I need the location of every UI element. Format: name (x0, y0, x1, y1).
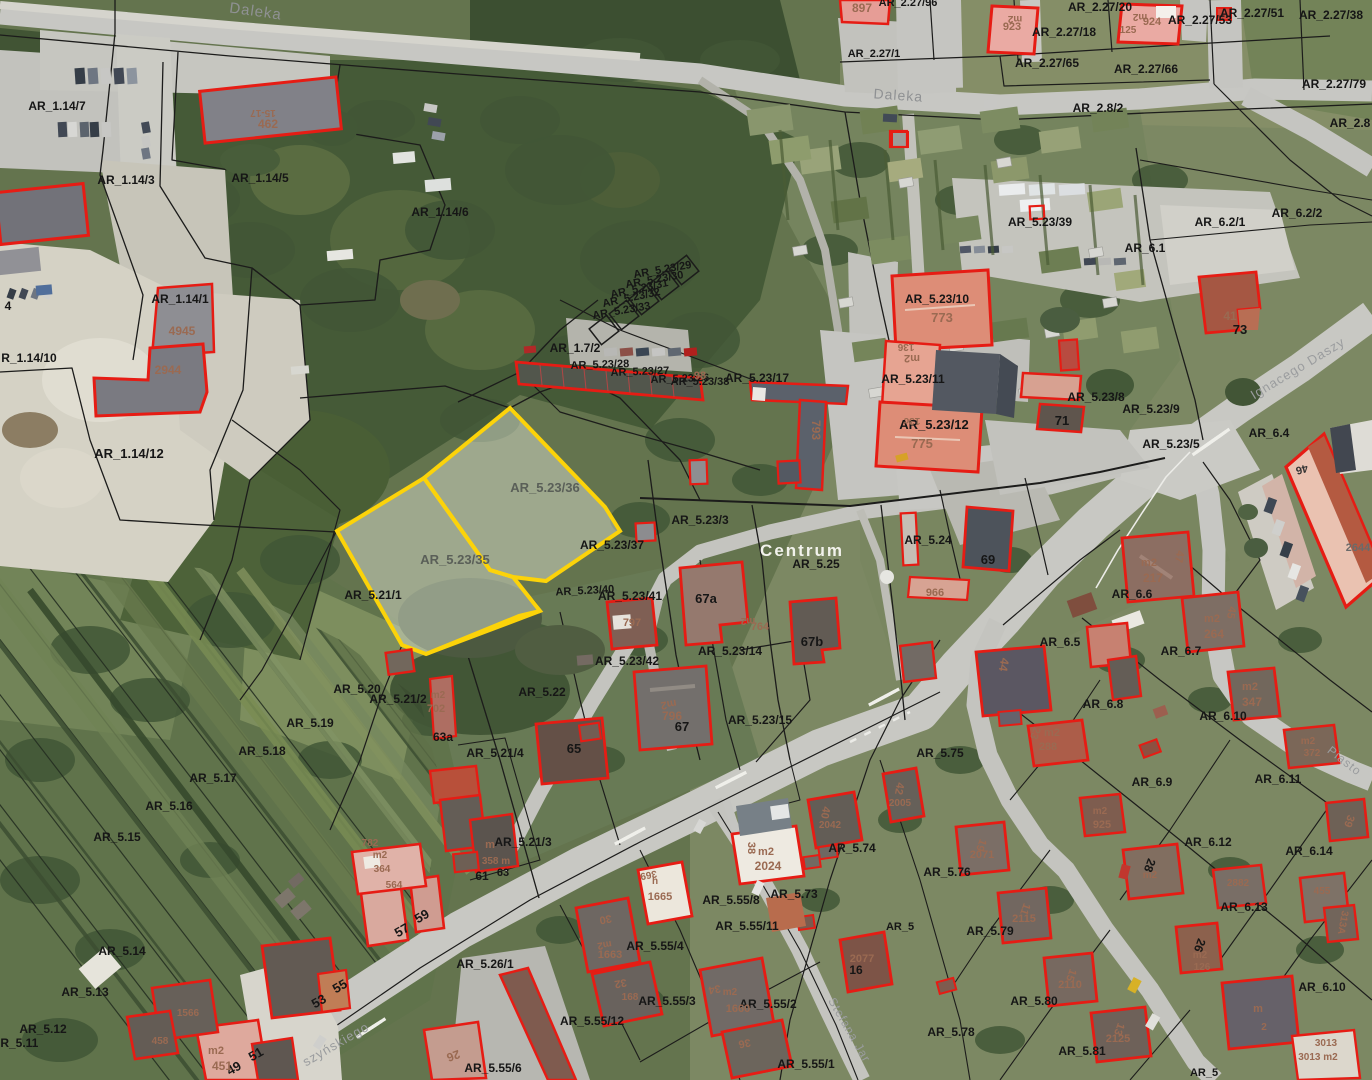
svg-text:358 m: 358 m (482, 856, 510, 867)
svg-text:AR_5.23/8: AR_5.23/8 (1067, 390, 1125, 404)
svg-text:2024: 2024 (755, 859, 782, 873)
svg-text:AR_5.25: AR_5.25 (792, 557, 840, 571)
svg-text:AR_5.23/10: AR_5.23/10 (905, 292, 969, 306)
svg-text:217: 217 (1143, 571, 1163, 585)
svg-text:61: 61 (475, 869, 489, 883)
svg-text:AR_5.16: AR_5.16 (145, 799, 193, 813)
svg-text:AR_5.23/39: AR_5.23/39 (1008, 215, 1072, 229)
svg-text:m2: m2 (373, 850, 388, 861)
svg-text:AR_5.23/35: AR_5.23/35 (420, 552, 489, 567)
svg-text:3013: 3013 (1315, 1038, 1338, 1049)
svg-text:45: 45 (1224, 605, 1238, 619)
svg-text:AR_5.80: AR_5.80 (1010, 994, 1058, 1008)
svg-text:897: 897 (852, 1, 872, 15)
svg-text:1663: 1663 (598, 949, 622, 961)
svg-text:AR_5.23/5: AR_5.23/5 (1142, 437, 1200, 451)
svg-text:AR_5.23/37: AR_5.23/37 (580, 538, 644, 552)
svg-text:63a: 63a (433, 730, 453, 744)
svg-text:AR_1.7/2: AR_1.7/2 (550, 341, 601, 355)
svg-text:773: 773 (931, 310, 953, 325)
svg-text:AR_5.23/15: AR_5.23/15 (728, 713, 792, 727)
svg-text:458: 458 (152, 1036, 169, 1047)
svg-text:AR_5.55/4: AR_5.55/4 (626, 939, 684, 953)
svg-text:AR_5.14: AR_5.14 (98, 944, 146, 958)
svg-text:16: 16 (849, 963, 863, 977)
svg-text:372: 372 (1304, 748, 1321, 759)
svg-text:AR_2.8: AR_2.8 (1330, 116, 1371, 130)
svg-text:65: 65 (567, 741, 581, 756)
svg-text:AR_1.14/3: AR_1.14/3 (97, 173, 155, 187)
svg-text:m2: m2 (1193, 950, 1208, 961)
svg-text:44: 44 (996, 657, 1012, 673)
svg-text:AR_5.13: AR_5.13 (61, 985, 109, 999)
svg-text:98: 98 (694, 370, 706, 382)
svg-text:67a: 67a (695, 591, 717, 606)
svg-text:2071: 2071 (970, 849, 994, 861)
svg-text:m2: m2 (1143, 870, 1158, 881)
svg-text:168: 168 (622, 992, 639, 1003)
svg-text:13c: 13c (903, 415, 920, 426)
svg-text:136: 136 (897, 341, 914, 352)
svg-text:63: 63 (497, 867, 509, 879)
svg-text:4: 4 (5, 299, 12, 313)
svg-text:AR_5.19: AR_5.19 (286, 716, 334, 730)
svg-text:AR_5.21/2: AR_5.21/2 (369, 692, 427, 706)
svg-text:125: 125 (1120, 25, 1137, 36)
svg-text:2115: 2115 (1012, 913, 1036, 925)
svg-text:AR_6.12: AR_6.12 (1184, 835, 1232, 849)
svg-text:AR_2.27/65: AR_2.27/65 (1015, 56, 1079, 70)
svg-text:AR_6.6: AR_6.6 (1112, 587, 1153, 601)
svg-text:AR_5.75: AR_5.75 (916, 746, 964, 760)
svg-text:AR_5.55/8: AR_5.55/8 (702, 893, 760, 907)
svg-text:AR_5.55/12: AR_5.55/12 (560, 1014, 624, 1028)
svg-text:451: 451 (212, 1059, 232, 1073)
svg-text:AR_1.14/7: AR_1.14/7 (28, 99, 86, 113)
svg-text:AR_2.27/18: AR_2.27/18 (1032, 25, 1096, 39)
svg-text:m2: m2 (1301, 736, 1316, 747)
svg-text:455: 455 (1314, 886, 1331, 897)
svg-text:775: 775 (911, 436, 933, 451)
svg-text:AR_1.14/6: AR_1.14/6 (411, 205, 469, 219)
svg-text:m2: m2 (723, 987, 738, 998)
svg-text:AR_5.23/36: AR_5.23/36 (510, 480, 579, 495)
svg-text:264: 264 (1204, 627, 1224, 641)
svg-text:AR_5.55/11: AR_5.55/11 (715, 919, 779, 933)
svg-text:m2: m2 (1007, 13, 1022, 24)
svg-text:AR_5.23/9: AR_5.23/9 (1122, 402, 1180, 416)
svg-text:36: 36 (737, 1036, 751, 1050)
svg-text:67b: 67b (801, 634, 823, 649)
svg-text:m: m (1253, 1003, 1263, 1015)
svg-text:3013 m2: 3013 m2 (1298, 1052, 1338, 1063)
svg-text:564: 564 (386, 880, 403, 891)
svg-text:2005: 2005 (889, 798, 912, 809)
svg-text:AR_6.1: AR_6.1 (1125, 241, 1166, 255)
svg-text:364: 364 (374, 864, 391, 875)
svg-text:AR_6.2/2: AR_6.2/2 (1272, 206, 1323, 220)
svg-text:126: 126 (1194, 962, 1211, 973)
svg-text:AR_1.14/1: AR_1.14/1 (151, 292, 209, 306)
svg-text:AR_2.27/51: AR_2.27/51 (1220, 6, 1284, 20)
svg-text:m2: m2 (1132, 11, 1147, 22)
svg-text:AR_2.27/20: AR_2.27/20 (1068, 0, 1132, 14)
svg-text:1665: 1665 (648, 891, 672, 903)
svg-text:R_1.14/10: R_1.14/10 (1, 351, 57, 365)
svg-text:AR_5.11: AR_5.11 (0, 1036, 39, 1050)
svg-text:AR_5.23/14: AR_5.23/14 (698, 644, 762, 658)
svg-text:AR_5.17: AR_5.17 (189, 771, 237, 785)
svg-text:AR_2.27/66: AR_2.27/66 (1114, 62, 1178, 76)
svg-text:2110: 2110 (1058, 979, 1082, 991)
svg-text:m: m (485, 839, 495, 851)
svg-text:47: 47 (1172, 549, 1186, 563)
svg-text:AR_5: AR_5 (1190, 1067, 1218, 1079)
svg-text:347: 347 (1242, 695, 1262, 709)
svg-text:m2: m2 (904, 352, 920, 364)
svg-text:AR_2.27/38: AR_2.27/38 (1299, 8, 1363, 22)
svg-text:AR_5.18: AR_5.18 (238, 744, 286, 758)
svg-text:AR_6.10: AR_6.10 (1298, 980, 1346, 994)
svg-text:702: 702 (427, 703, 445, 715)
svg-text:AR_5: AR_5 (886, 921, 914, 933)
svg-text:AR_5.15: AR_5.15 (93, 830, 141, 844)
svg-text:782: 782 (362, 838, 379, 849)
svg-text:AR_5.22: AR_5.22 (518, 685, 566, 699)
svg-text:AR_6.14: AR_6.14 (1285, 844, 1333, 858)
svg-text:40: 40 (818, 805, 832, 819)
svg-text:2042: 2042 (819, 820, 842, 831)
svg-text:AR_5.21/1: AR_5.21/1 (344, 588, 402, 602)
svg-text:AR_6.5: AR_6.5 (1040, 635, 1081, 649)
svg-text:AR_5.55/3: AR_5.55/3 (638, 994, 696, 1008)
svg-text:2125: 2125 (1106, 1033, 1130, 1045)
svg-text:41: 41 (1223, 309, 1237, 323)
svg-text:AR_6.2/1: AR_6.2/1 (1195, 215, 1246, 229)
svg-text:2944: 2944 (155, 363, 182, 377)
svg-text:AR_5.55/1: AR_5.55/1 (777, 1057, 835, 1071)
svg-text:AR_5.79: AR_5.79 (966, 924, 1014, 938)
svg-text:m2: m2 (431, 690, 446, 701)
svg-text:AR_5.21/3: AR_5.21/3 (494, 835, 552, 849)
svg-text:AR_6.9: AR_6.9 (1132, 775, 1173, 789)
svg-text:793: 793 (809, 420, 823, 440)
svg-text:AR_5.55/6: AR_5.55/6 (464, 1061, 522, 1075)
svg-text:73: 73 (1233, 322, 1247, 337)
svg-text:AR_5.23/11: AR_5.23/11 (881, 372, 945, 386)
svg-text:462: 462 (258, 117, 278, 131)
svg-text:AR_5.12: AR_5.12 (19, 1022, 67, 1036)
svg-text:m2: m2 (1242, 681, 1258, 693)
svg-text:2882: 2882 (1227, 878, 1250, 889)
svg-text:288: 288 (1039, 741, 1057, 753)
svg-text:AR_5.23/3: AR_5.23/3 (671, 513, 729, 527)
svg-text:797: 797 (623, 617, 641, 629)
svg-text:796: 796 (662, 709, 682, 723)
svg-text:AR_5.76: AR_5.76 (923, 865, 971, 879)
svg-text:925: 925 (1093, 819, 1111, 831)
svg-text:AR_2.27/79: AR_2.27/79 (1302, 77, 1366, 91)
svg-text:m2: m2 (208, 1045, 224, 1057)
svg-text:2: 2 (1261, 1022, 1267, 1033)
svg-text:38: 38 (745, 842, 757, 854)
svg-text:30: 30 (598, 912, 612, 926)
svg-text:AR_5.24: AR_5.24 (904, 533, 952, 547)
svg-text:AR_2.8/2: AR_2.8/2 (1073, 101, 1124, 115)
svg-text:AR_6.7: AR_6.7 (1161, 644, 1202, 658)
svg-text:AR_6.13: AR_6.13 (1220, 900, 1268, 914)
svg-text:AR_5.26/1: AR_5.26/1 (456, 957, 514, 971)
svg-text:m2: m2 (758, 846, 774, 858)
svg-text:1660: 1660 (726, 1003, 750, 1015)
svg-text:AR_1.14/5: AR_1.14/5 (231, 171, 289, 185)
svg-text:m2: m2 (1044, 727, 1060, 739)
svg-text:m2: m2 (1204, 613, 1220, 625)
svg-text:m2: m2 (1141, 557, 1157, 569)
svg-text:4945: 4945 (169, 324, 196, 338)
svg-text:AR_5.21/4: AR_5.21/4 (466, 746, 524, 760)
svg-text:AR_5.23/42: AR_5.23/42 (595, 654, 659, 668)
svg-text:m2: m2 (1093, 806, 1108, 817)
svg-text:2644: 2644 (1346, 542, 1371, 554)
svg-text:71: 71 (1055, 413, 1069, 428)
svg-text:AR_6.10: AR_6.10 (1199, 709, 1247, 723)
svg-text:AR_5.73: AR_5.73 (770, 887, 818, 901)
svg-text:AR_5.78: AR_5.78 (927, 1025, 975, 1039)
svg-text:AR_1.14/12: AR_1.14/12 (94, 446, 163, 461)
svg-text:69: 69 (981, 552, 995, 567)
svg-text:32: 32 (613, 976, 627, 990)
svg-text:AR_6.8: AR_6.8 (1083, 697, 1124, 711)
svg-text:m2: m2 (740, 615, 755, 626)
svg-text:AR_6.11: AR_6.11 (1255, 772, 1302, 786)
svg-text:15-17: 15-17 (250, 107, 276, 118)
svg-text:AR_5.81: AR_5.81 (1058, 1044, 1106, 1058)
svg-text:AR_5.74: AR_5.74 (828, 841, 876, 855)
svg-text:42: 42 (892, 781, 906, 795)
svg-text:AR_2.27/1: AR_2.27/1 (848, 48, 901, 60)
svg-text:966: 966 (926, 587, 944, 599)
svg-text:AR_2.27/96: AR_2.27/96 (879, 0, 938, 9)
svg-text:AR_6.4: AR_6.4 (1249, 426, 1290, 440)
svg-text:1566: 1566 (177, 1008, 200, 1019)
svg-text:AR_5.23/17: AR_5.23/17 (725, 371, 789, 385)
